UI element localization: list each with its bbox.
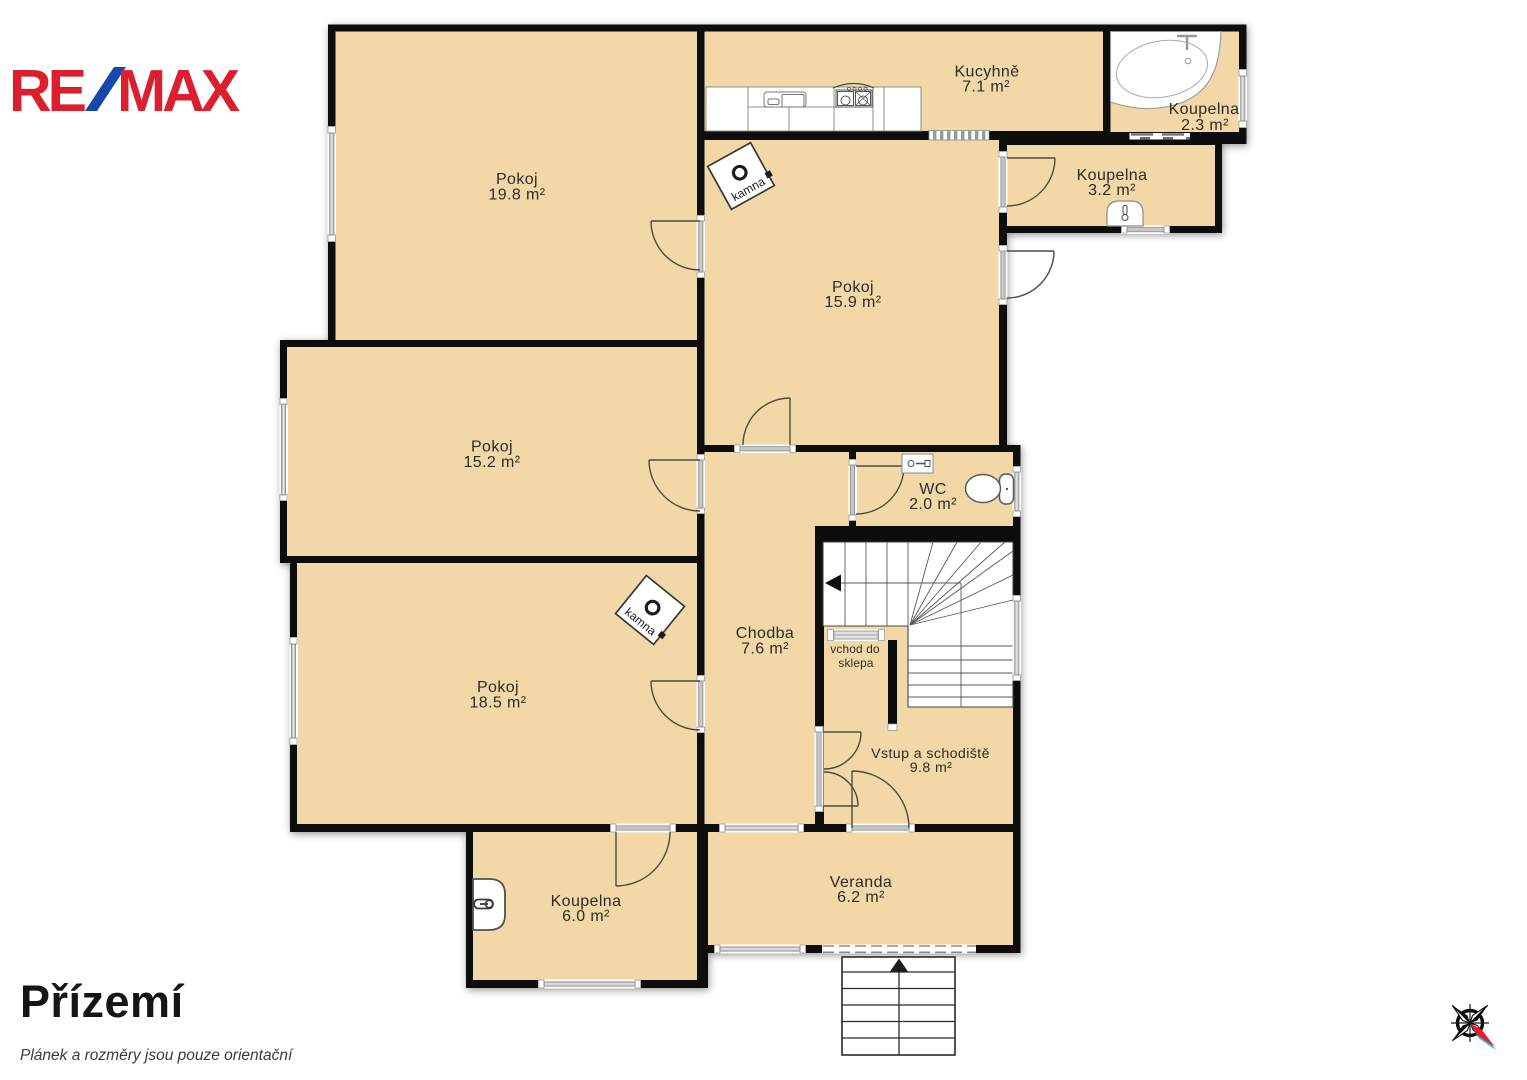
svg-text:Přízemí: Přízemí (20, 976, 185, 1027)
svg-text:2.3 m²: 2.3 m² (1181, 117, 1229, 134)
svg-text:6.0 m²: 6.0 m² (562, 908, 610, 925)
svg-text:6.2 m²: 6.2 m² (837, 889, 885, 906)
svg-text:Pokoj: Pokoj (477, 679, 519, 696)
svg-text:9.8 m²: 9.8 m² (910, 760, 953, 776)
svg-text:RE: RE (9, 58, 86, 124)
svg-text:2.0 m²: 2.0 m² (909, 496, 957, 513)
svg-text:15.9 m²: 15.9 m² (824, 294, 881, 311)
svg-text:MAX: MAX (117, 58, 240, 124)
svg-text:18.5 m²: 18.5 m² (469, 695, 526, 712)
svg-text:19.8 m²: 19.8 m² (488, 187, 545, 204)
svg-text:Pokoj: Pokoj (496, 171, 538, 188)
svg-text:Chodba: Chodba (736, 625, 794, 642)
svg-text:Pokoj: Pokoj (471, 439, 513, 456)
svg-text:vchod do: vchod do (830, 642, 880, 656)
svg-text:sklepa: sklepa (838, 656, 874, 670)
svg-text:15.2 m²: 15.2 m² (463, 454, 520, 471)
svg-text:Plánek a rozměry jsou pouze or: Plánek a rozměry jsou pouze orientační (20, 1047, 294, 1064)
svg-text:7.6 m²: 7.6 m² (741, 641, 789, 658)
svg-text:3.2 m²: 3.2 m² (1088, 182, 1136, 199)
svg-text:Koupelna: Koupelna (1169, 101, 1240, 118)
svg-text:7.1 m²: 7.1 m² (962, 79, 1010, 96)
